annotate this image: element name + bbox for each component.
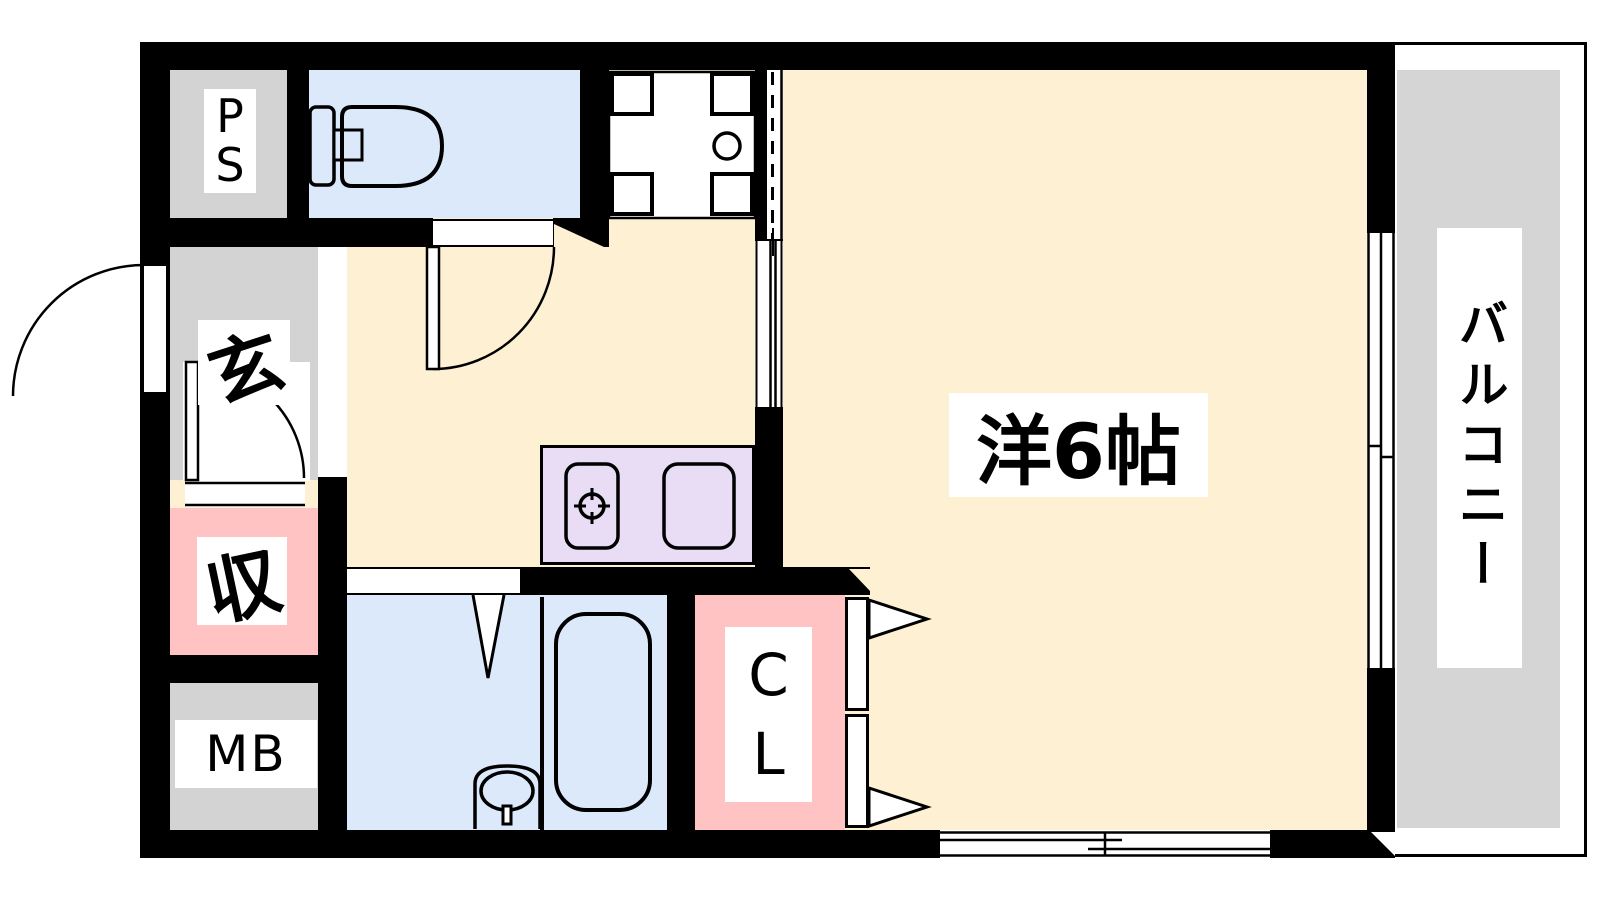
- wall-left-column-right: [318, 477, 347, 830]
- label-balcony: バルコニー: [1437, 228, 1522, 668]
- closet-door-leaf-lower: [845, 714, 869, 828]
- label-closet: C L: [725, 627, 812, 802]
- bathroom-door-opening: [347, 567, 520, 595]
- label-western-room: 洋6帖: [949, 393, 1208, 497]
- closet-door-leaf-upper: [845, 597, 869, 711]
- wall-top: [140, 42, 1395, 70]
- room-bathroom: [347, 595, 667, 830]
- label-closet-line2: L: [752, 715, 784, 793]
- wall-storage-mb: [170, 655, 318, 683]
- wall-row1-bottom-left: [140, 218, 433, 247]
- label-closet-line1: C: [748, 636, 789, 714]
- wall-bath-closet: [667, 595, 695, 830]
- wall-toilet-kitchen: [580, 70, 609, 218]
- label-meter-box: MB: [175, 720, 317, 788]
- kitchen-counter: [540, 445, 755, 565]
- toilet-door-opening: [433, 219, 553, 247]
- genkan-hall-opening: [318, 247, 347, 477]
- wall-left: [140, 42, 170, 858]
- front-door-swing-icon: [13, 265, 144, 396]
- partition-hanging-opening: [767, 70, 783, 240]
- wall-row1-bottom-right: [553, 218, 609, 247]
- label-meter-box-text: MB: [205, 725, 286, 783]
- label-ps-line2: S: [215, 141, 244, 190]
- room-toilet: [309, 70, 580, 218]
- wall-partition-upper: [755, 70, 767, 240]
- label-genkan: 玄: [198, 320, 290, 405]
- wall-hall-bottom: [520, 567, 870, 595]
- wall-ps-toilet: [287, 70, 309, 218]
- bottom-window: [940, 830, 1270, 858]
- wall-right-lower: [1367, 668, 1395, 858]
- kitchen-sliding-door: [755, 240, 783, 407]
- floor-plan: P S 玄 収 MB C L 洋6帖 バルコニー: [0, 0, 1600, 900]
- label-ps-line1: P: [216, 92, 244, 141]
- label-western-room-text: 洋6帖: [976, 390, 1181, 500]
- balcony-window: [1367, 233, 1395, 668]
- label-storage-text: 収: [195, 521, 290, 641]
- front-door-leaf: [141, 263, 169, 395]
- label-storage: 収: [197, 537, 287, 625]
- label-ps: P S: [204, 89, 256, 193]
- label-balcony-text: バルコニー: [1444, 298, 1516, 598]
- wall-right-upper: [1367, 42, 1395, 233]
- wall-partition-lower: [755, 407, 783, 595]
- genkan-step: [185, 481, 305, 507]
